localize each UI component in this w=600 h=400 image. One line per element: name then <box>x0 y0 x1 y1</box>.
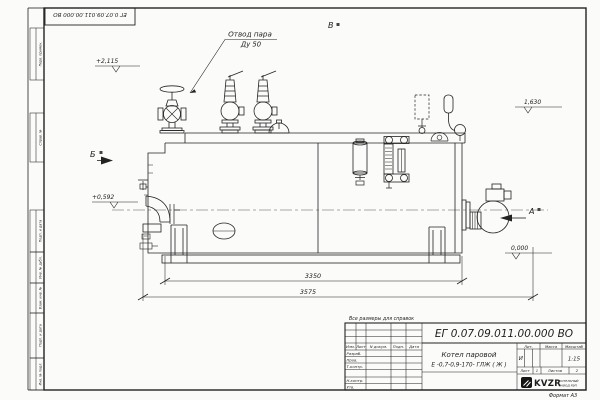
kvzr-logo-sub1: КОТЕЛЬНЫЙ <box>559 378 579 383</box>
callout-line2: Ду 50 <box>240 41 261 49</box>
tb-row-razrab: Разраб. <box>347 351 362 356</box>
tb-header-izm: Изм. <box>346 344 355 349</box>
drawing-sheet: ЕГ 0.07.09.011.00.000 ВО Перв. примен. С… <box>0 0 600 400</box>
tb-row-tkontr: Т.контр. <box>347 364 363 369</box>
format-label: Формат А3 <box>549 393 577 399</box>
margin-label: Подп. и дата <box>39 324 43 346</box>
margin-label: Инв. № дубл. <box>39 256 43 279</box>
kvzr-logo-text: KVZR <box>534 379 561 389</box>
tb-sheet-value: 1 <box>536 368 538 373</box>
tb-sheets-label: Листов <box>547 368 563 373</box>
tb-header-list: Лист <box>355 344 366 349</box>
elevation-middle-value: +0,592 <box>92 194 114 201</box>
view-marker-v-label: В <box>328 21 334 30</box>
corner-stamp-number: ЕГ 0.07.09.011.00.000 ВО <box>53 11 127 17</box>
margin-label: Взам. инв. № <box>39 286 43 309</box>
tb-sheet-label: Лист <box>519 368 530 373</box>
tb-lit-value: И <box>519 356 523 362</box>
kvzr-logo: KVZR КОТЕЛЬНЫЙ ЗАВОД РЭП <box>521 377 579 389</box>
margin-label: Справ. № <box>39 129 43 146</box>
callout-line1: Отвод пара <box>228 30 272 39</box>
reference-note: Все размеры для справок <box>349 316 414 322</box>
margin-label: Перв. примен. <box>39 42 43 67</box>
kvzr-logo-sub2: ЗАВОД РЭП <box>559 384 578 388</box>
view-marker-a-label: А <box>528 207 534 216</box>
view-marker-b-label: Б <box>90 150 96 159</box>
sheet-frame: ЕГ 0.07.09.011.00.000 ВО Перв. примен. С… <box>0 0 600 400</box>
tb-row-prov: Пров. <box>347 358 358 363</box>
tb-doc-number: ЕГ 0.07.09.011.00.000 ВО <box>435 328 573 340</box>
tb-scale-header: Масштаб <box>565 344 584 349</box>
margin-label: Подп. и дата <box>39 220 43 242</box>
elevation-zero-value: 0,000 <box>511 245 528 252</box>
tb-mass-header: Масса <box>545 344 558 349</box>
tb-scale-value: 1:15 <box>568 357 581 363</box>
tb-product-line1: Котел паровой <box>442 351 497 359</box>
tb-row-utv: Утв. <box>347 385 355 390</box>
tb-header-podp: Подп. <box>393 344 405 349</box>
elevation-top-value: +2,115 <box>96 58 118 65</box>
tb-header-ndoc: N докум. <box>370 344 388 349</box>
elevation-right-value: 1,630 <box>524 99 541 106</box>
tb-lit-header: Лит. <box>523 344 533 349</box>
dimension-inner-value: 3350 <box>305 272 321 280</box>
margin-label: Инв. № подл. <box>39 363 43 386</box>
tb-product-line2: Е -0,7-0,9-170- ГЛЖ ( Ж ) <box>431 363 506 369</box>
tb-row-nkontr: Н.контр. <box>347 378 364 383</box>
dimension-overall-value: 3575 <box>300 288 316 296</box>
tb-header-data: Дата <box>408 344 420 349</box>
